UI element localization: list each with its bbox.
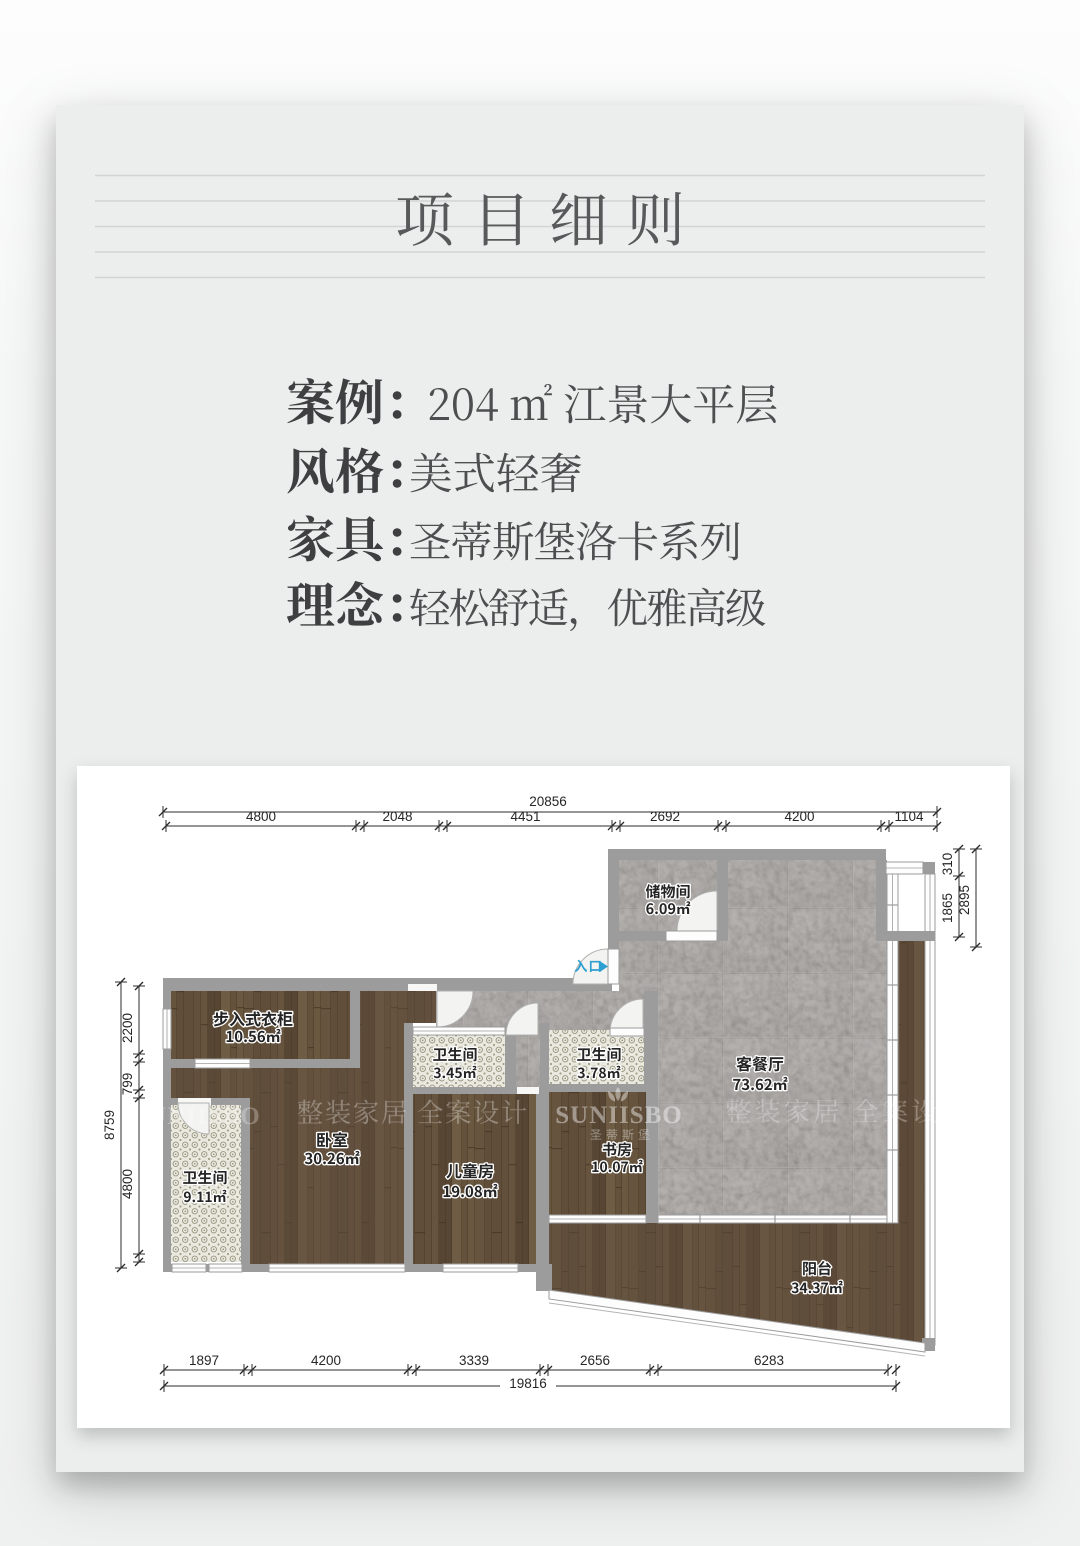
svg-text:799: 799 bbox=[120, 1073, 135, 1096]
svg-text:4800: 4800 bbox=[246, 809, 276, 824]
svg-text:2048: 2048 bbox=[382, 809, 412, 824]
svg-text:8759: 8759 bbox=[102, 1110, 117, 1140]
svg-text:1865: 1865 bbox=[940, 893, 955, 923]
svg-text:2692: 2692 bbox=[650, 809, 680, 824]
svg-text:2656: 2656 bbox=[580, 1353, 610, 1368]
svg-text:1104: 1104 bbox=[894, 809, 924, 824]
svg-text:2895: 2895 bbox=[957, 885, 972, 915]
svg-text:6283: 6283 bbox=[754, 1353, 784, 1368]
svg-text:310: 310 bbox=[940, 853, 955, 876]
svg-text:20856: 20856 bbox=[529, 794, 567, 809]
svg-text:4200: 4200 bbox=[784, 809, 814, 824]
svg-text:3339: 3339 bbox=[459, 1353, 489, 1368]
svg-text:4200: 4200 bbox=[311, 1353, 341, 1368]
svg-text:1897: 1897 bbox=[189, 1353, 219, 1368]
svg-text:SUNIISBO: SUNIISBO bbox=[133, 1103, 261, 1130]
svg-text:2200: 2200 bbox=[120, 1013, 135, 1043]
svg-text:4451: 4451 bbox=[510, 809, 540, 824]
svg-text:4800: 4800 bbox=[120, 1169, 135, 1199]
svg-text:SUNIISBO: SUNIISBO bbox=[555, 1102, 683, 1129]
svg-text:19816: 19816 bbox=[509, 1376, 547, 1391]
